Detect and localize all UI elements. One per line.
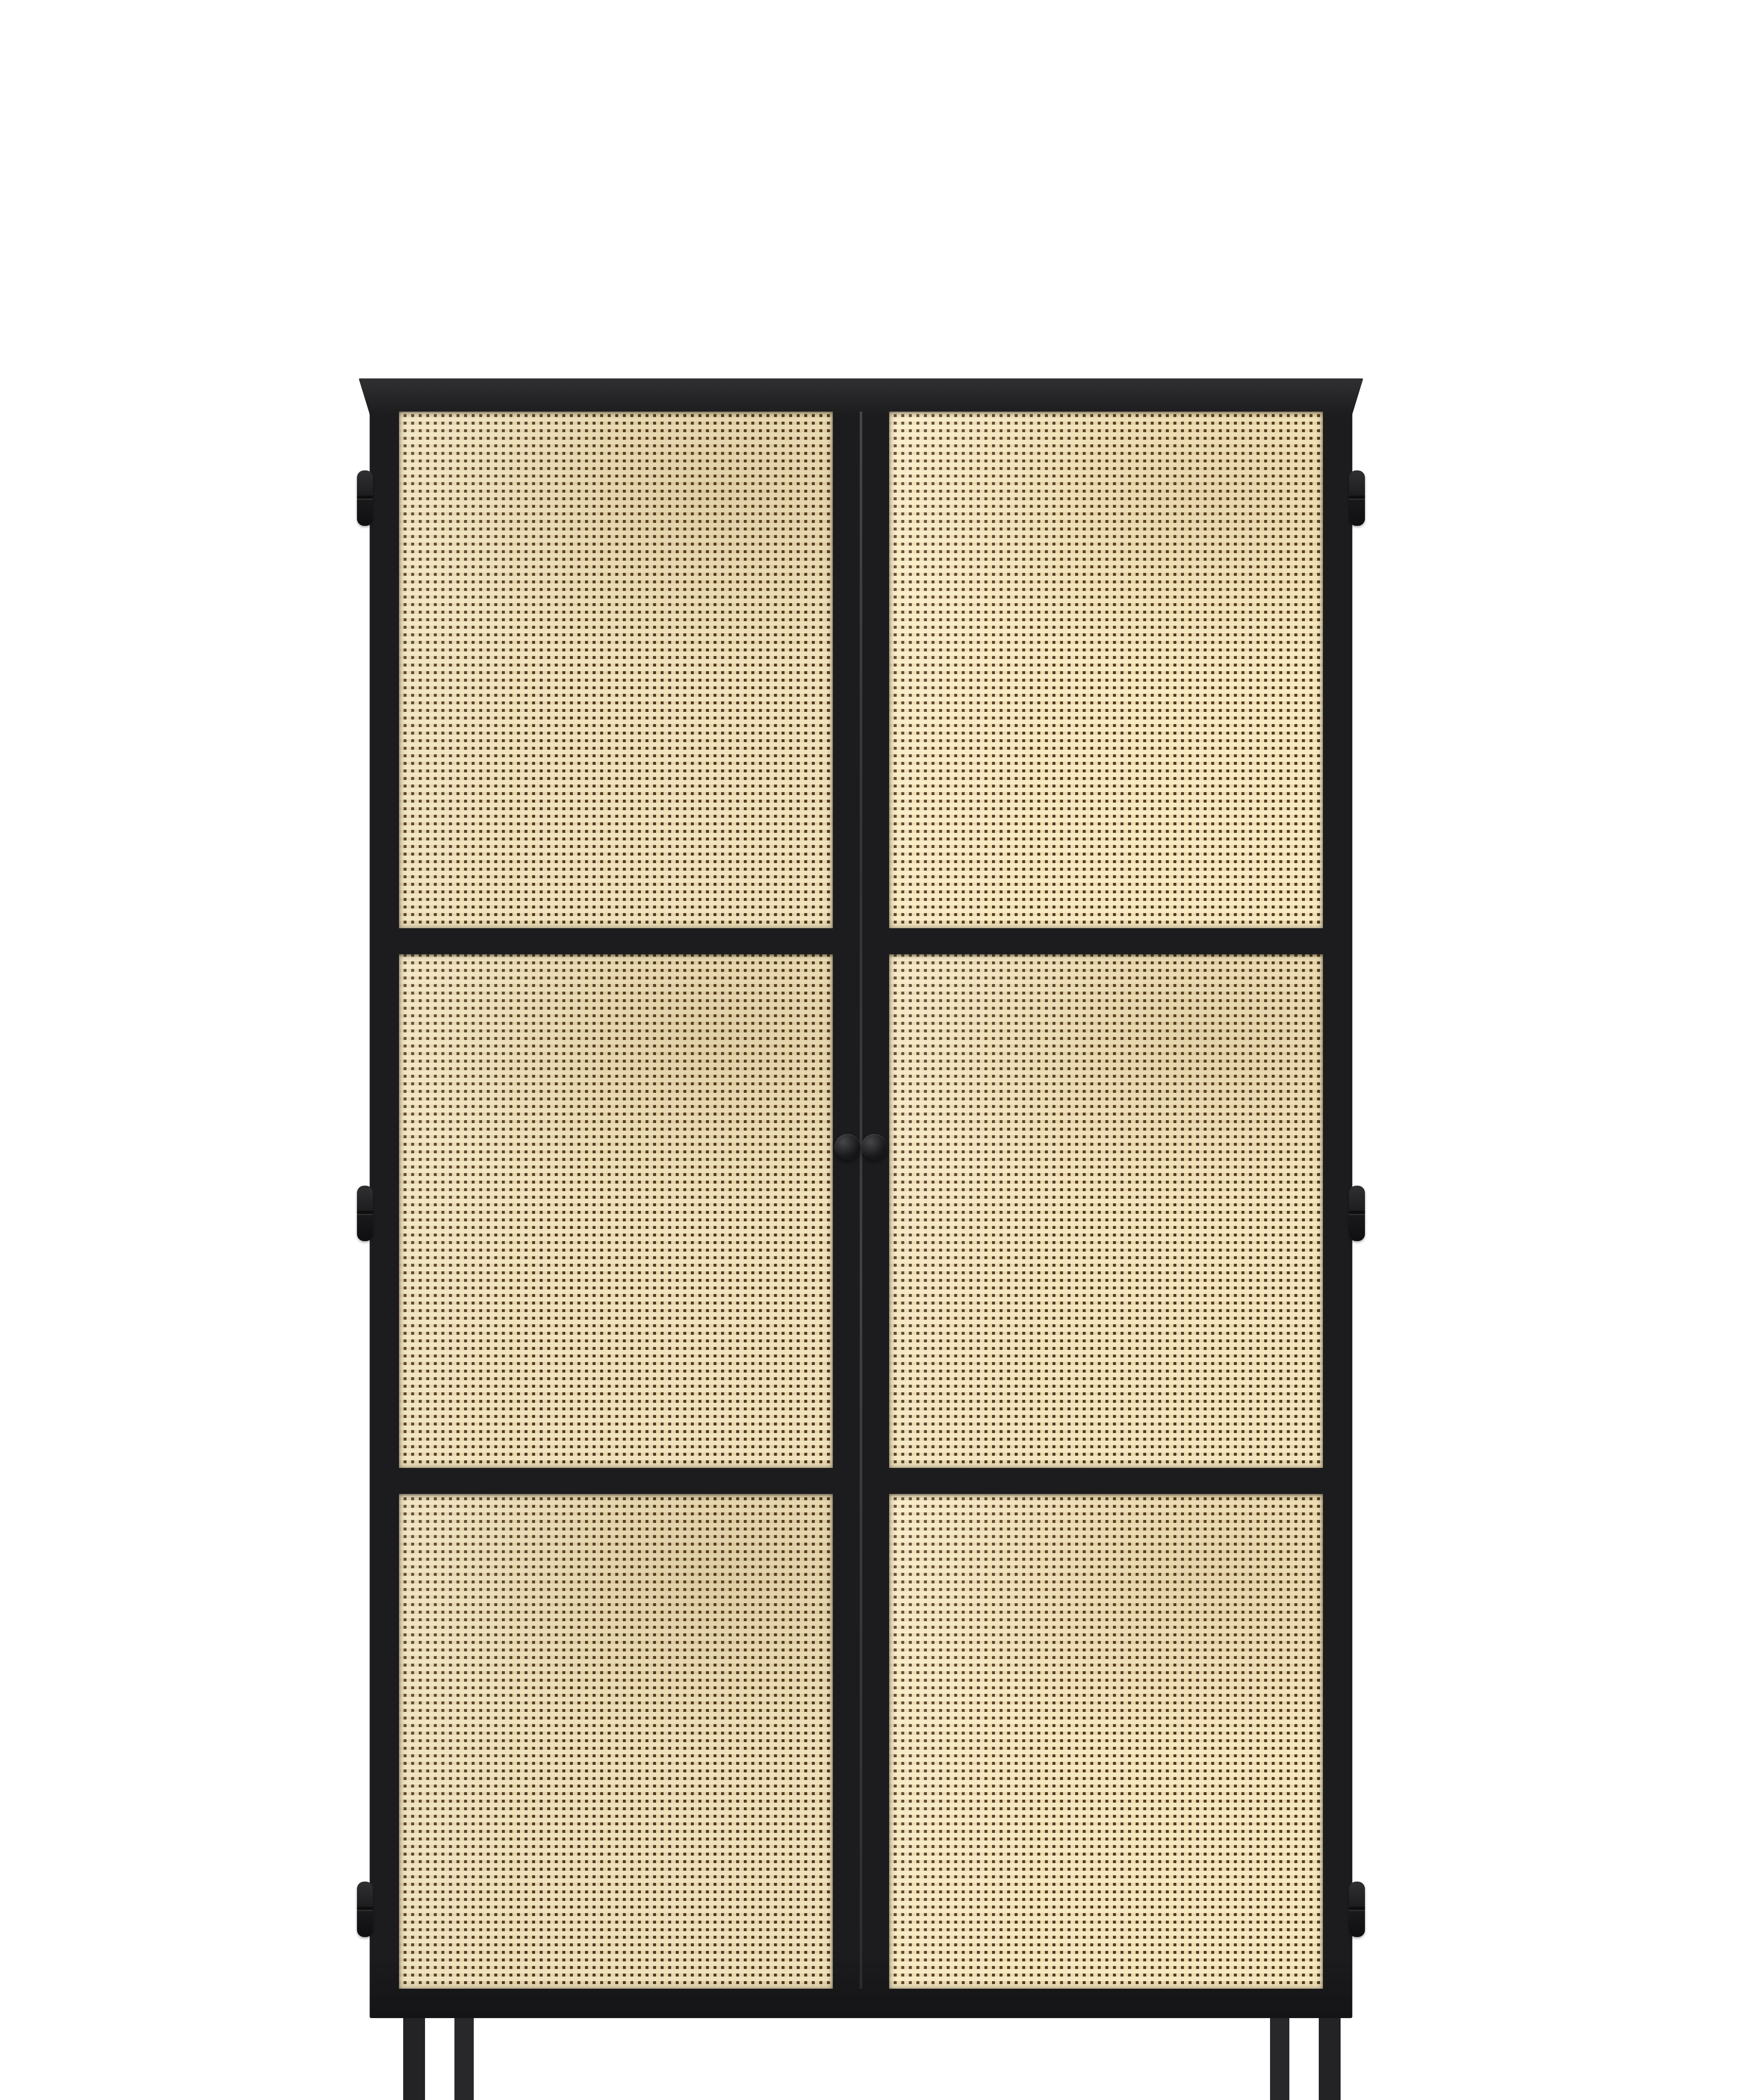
page: { "scene": { "description": "Studio prod… [0,0,1761,2100]
base-back-right-leg [1270,2018,1289,2100]
hinge-left-middle [357,1186,373,1241]
base-front-left-leg [403,2018,425,2100]
door-knob-right [861,1134,887,1160]
hinge-right-bottom [1349,1882,1365,1937]
cane-panel-left-middle [399,954,833,1468]
hinge-right-middle [1349,1186,1365,1241]
base-back-left-leg [454,2018,474,2100]
hinge-left-bottom [357,1882,373,1937]
base-frame [395,2018,1349,2100]
photo-background [0,0,1761,2100]
cane-panel-right-middle [889,954,1323,1468]
hinge-left-top [357,470,373,526]
door-gap-seam [860,412,862,1989]
cabinet-top-cap [359,378,1363,415]
cane-panel-left-bottom [399,1494,833,1989]
cane-panel-right-top [889,412,1323,928]
base-front-right-leg [1319,2018,1341,2100]
cane-panel-left-top [399,412,833,928]
hinge-right-top [1349,470,1365,526]
door-knob-left [835,1134,861,1160]
cabinet-body [370,380,1352,2018]
cane-panel-right-bottom [889,1494,1323,1989]
